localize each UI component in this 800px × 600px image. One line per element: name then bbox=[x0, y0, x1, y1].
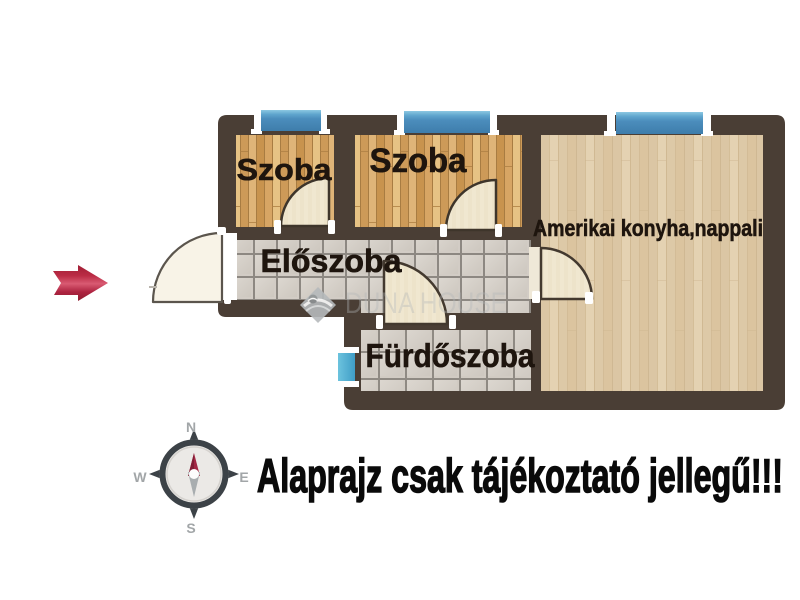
svg-text:Alaprajz csak tájékoztató jell: Alaprajz csak tájékoztató jellegű!!! bbox=[257, 449, 783, 502]
svg-text:Amerikai konyha,nappali: Amerikai konyha,nappali bbox=[533, 215, 763, 241]
svg-text:W: W bbox=[133, 469, 147, 485]
svg-text:E: E bbox=[239, 469, 248, 485]
svg-text:Szoba: Szoba bbox=[237, 152, 333, 187]
svg-text:N: N bbox=[186, 419, 196, 435]
svg-text:Szoba: Szoba bbox=[370, 142, 468, 180]
svg-text:Fürdőszoba: Fürdőszoba bbox=[366, 337, 536, 374]
svg-text:S: S bbox=[186, 520, 195, 536]
svg-text:DUNA HOUSE: DUNA HOUSE bbox=[345, 287, 507, 320]
svg-text:Előszoba: Előszoba bbox=[261, 243, 402, 279]
